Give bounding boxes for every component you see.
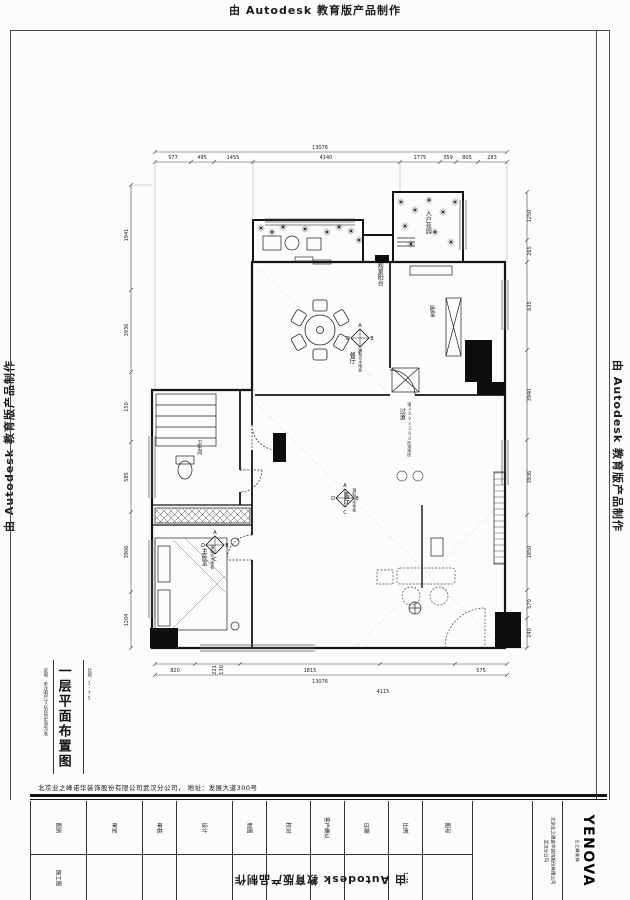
wall-poche — [150, 255, 521, 648]
svg-text:3940: 3940 — [527, 389, 533, 402]
separator-thin — [30, 799, 607, 800]
svg-text:575: 575 — [476, 668, 486, 674]
svg-text:635: 635 — [527, 301, 533, 311]
separator-thick — [30, 794, 607, 797]
finish-note-dining: 铺贴实木地板 — [358, 348, 362, 372]
room-label-corridor: 过道 — [398, 408, 404, 420]
tb-label: 比例 — [401, 822, 409, 833]
title-side-note-right: 比例：1:75 — [86, 668, 91, 778]
drawing-sheet: 由 Autodesk 教育版产品制作 由 Autodesk 教育版产品制作 由 … — [0, 0, 630, 900]
floor-plan: A B C D — [115, 140, 545, 700]
watermark-right: 由 Autodesk 教育版产品制作 — [610, 326, 626, 566]
room-label-garden: 入户花园 — [424, 210, 430, 234]
watermark-top: 由 Autodesk 教育版产品制作 — [195, 2, 435, 18]
room-label-dining: 餐厅 — [348, 352, 354, 364]
sheet-frame-inner-line — [596, 30, 597, 800]
bathroom-fixtures — [156, 394, 277, 492]
svg-text:130: 130 — [219, 665, 225, 675]
title-block-brand: YENOVA业之峰装饰 — [563, 801, 608, 900]
svg-text:1204: 1204 — [124, 614, 130, 627]
svg-text:570: 570 — [527, 599, 533, 609]
brand-logo: YENOVA业之峰装饰 — [575, 814, 597, 887]
title-divider-right — [83, 660, 84, 774]
tb-label: 制图 — [245, 822, 253, 833]
tb-label: 图号 — [443, 822, 451, 833]
tb-label: 图别 — [54, 822, 62, 833]
svg-text:265: 265 — [527, 246, 533, 256]
floor-sketch-lines — [255, 270, 503, 645]
svg-text:283: 283 — [487, 155, 497, 161]
svg-text:1941: 1941 — [124, 229, 130, 242]
drawing-title: 一层平面布置图 — [56, 664, 70, 782]
room-label-living: 客厅 — [342, 492, 348, 504]
svg-text:820: 820 — [170, 668, 180, 674]
room-label-master: 主卧室 — [200, 548, 206, 566]
windows — [149, 200, 508, 651]
tb-value: 施工图 — [54, 869, 62, 886]
balcony-plants — [258, 224, 363, 244]
living-room-furniture — [377, 471, 505, 648]
svg-text:1775: 1775 — [414, 155, 427, 161]
room-label-balcony: 观景阳台 — [376, 262, 382, 286]
svg-text:240: 240 — [527, 628, 533, 638]
svg-text:1815: 1815 — [304, 668, 317, 674]
room-label-bath: 卫生间 — [196, 440, 201, 455]
title-block-cell: 审核 — [143, 801, 177, 900]
dimension-text: 13076 577 495 1455 4140 1775 359 805 283… — [124, 145, 533, 695]
title-side-note-left: 说明：未注明尺寸以现场实测为准 — [42, 668, 47, 778]
svg-text:577: 577 — [168, 155, 178, 161]
svg-text:359: 359 — [443, 155, 453, 161]
tb-label: 校对 — [284, 822, 292, 833]
svg-text:805: 805 — [462, 155, 472, 161]
svg-text:1250: 1250 — [527, 210, 533, 223]
svg-text:221: 221 — [212, 665, 218, 675]
svg-text:3936: 3936 — [124, 324, 130, 337]
svg-text:495: 495 — [197, 155, 207, 161]
svg-text:3936: 3936 — [527, 471, 533, 484]
dimension-lines — [129, 150, 529, 677]
tb-label: 审定 — [110, 822, 118, 833]
svg-text:13076: 13076 — [312, 679, 328, 685]
company-name-rotated: 北京业之峰诺华装饰股份有限公司武汉分公司 — [541, 817, 555, 885]
title-block-cell: 图别 施工图 — [31, 801, 87, 900]
tb-label: 日期 — [362, 822, 370, 833]
finish-note-master: 铺贴实木地板 — [210, 545, 214, 569]
watermark-bottom: 由 Autodesk 教育版产品制作 — [200, 872, 440, 888]
title-divider-left — [53, 660, 54, 774]
svg-text:1850: 1850 — [527, 546, 533, 559]
svg-text:4140: 4140 — [320, 155, 333, 161]
svg-text:13076: 13076 — [312, 145, 328, 151]
brand-sub-label: 业之峰装饰 — [575, 814, 580, 887]
tb-label: 设计 — [200, 822, 208, 833]
svg-text:3906: 3906 — [124, 546, 130, 559]
company-address-line: 北京业之峰诺华装饰股份有限公司武汉分公司， 地址：发展大道300号 — [38, 782, 257, 792]
dining-table — [291, 300, 350, 360]
room-label-bedroom2: 卧室 — [428, 305, 434, 317]
tb-label: 审核 — [155, 822, 163, 833]
title-block-gap — [473, 801, 533, 900]
walls — [152, 192, 505, 648]
svg-text:1455: 1455 — [227, 155, 240, 161]
bedroom2-furniture — [390, 266, 461, 395]
svg-text:4115: 4115 — [377, 689, 390, 695]
finish-note-corridor: 铺300×300防滑地砖 — [407, 402, 411, 457]
svg-text:150: 150 — [124, 402, 130, 412]
master-bedroom-furniture — [155, 508, 252, 630]
title-block-company: 北京业之峰诺华装饰股份有限公司武汉分公司 — [533, 801, 563, 900]
svg-text:585: 585 — [124, 472, 130, 482]
title-block-cell: 审定 — [87, 801, 143, 900]
tb-label: 客户确认 — [323, 816, 331, 838]
finish-note-living: 铺贴实木地板 — [352, 488, 356, 512]
